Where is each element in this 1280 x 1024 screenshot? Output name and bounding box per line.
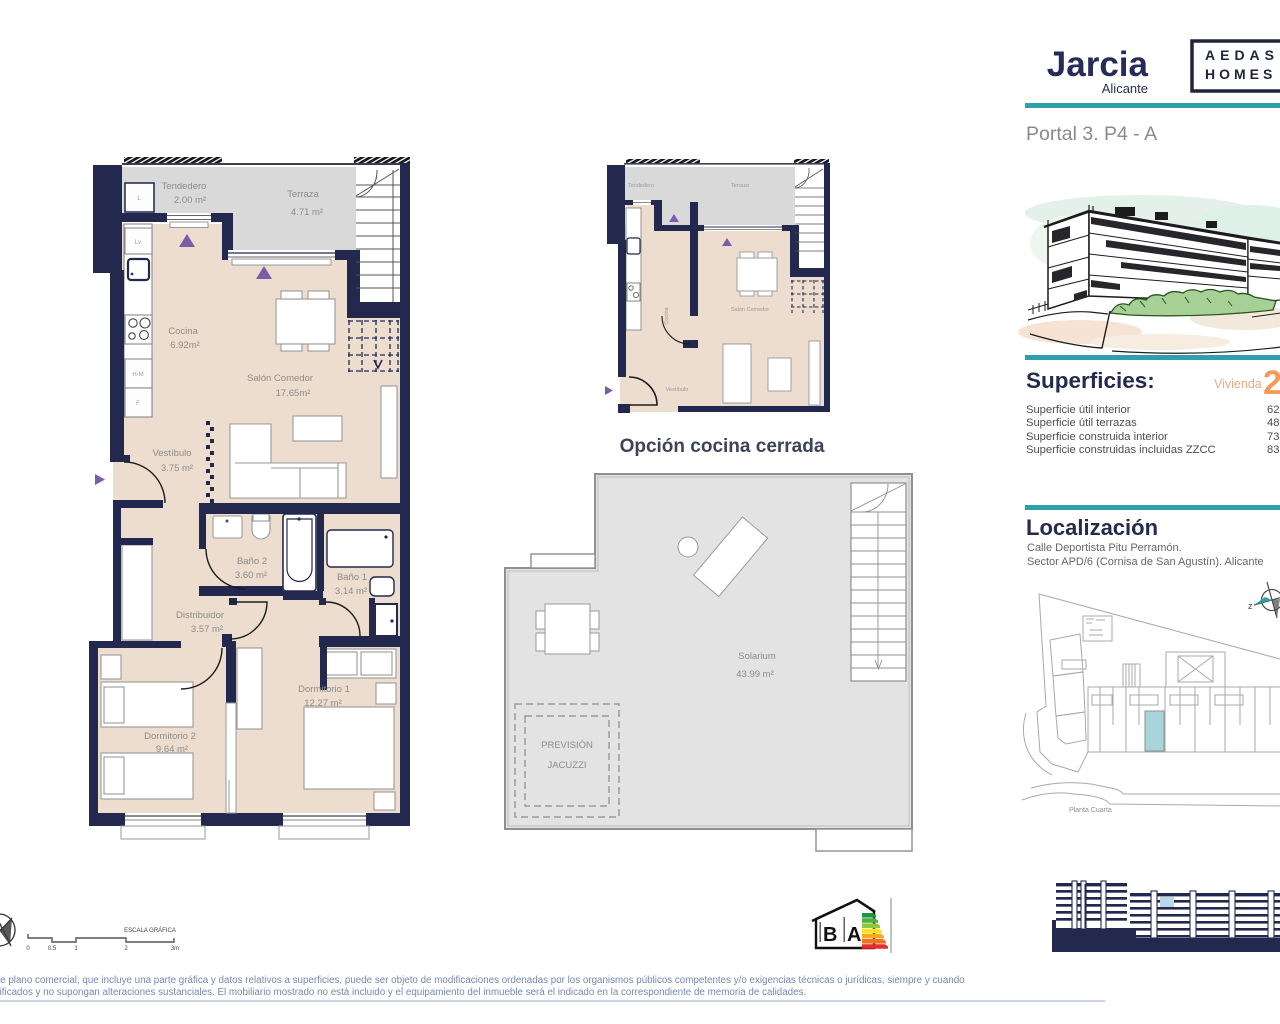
svg-text:Calle Deportista Pitu Perramón: Calle Deportista Pitu Perramón.: [1027, 542, 1182, 554]
svg-text:Cocina: Cocina: [664, 307, 670, 325]
svg-text:48: 48: [1267, 417, 1279, 429]
svg-text:B: B: [823, 924, 837, 946]
svg-text:Superficie construidas incluid: Superficie construidas incluidas ZZCC: [1026, 444, 1216, 456]
svg-text:Alicante: Alicante: [1102, 81, 1148, 96]
svg-text:Opción cocina cerrada: Opción cocina cerrada: [620, 436, 825, 457]
svg-text:Portal 3. P4 - A: Portal 3. P4 - A: [1026, 123, 1157, 145]
svg-text:83: 83: [1267, 444, 1279, 456]
svg-text:nte plano comercial, que inclu: nte plano comercial, que incluye una par…: [0, 975, 965, 986]
svg-text:PREVISIÓN: PREVISIÓN: [541, 740, 593, 751]
svg-text:Terraza: Terraza: [287, 189, 319, 200]
svg-text:HOMES: HOMES: [1205, 66, 1276, 82]
svg-text:Superficie útil terrazas: Superficie útil terrazas: [1026, 417, 1137, 429]
svg-text:Distribuidor: Distribuidor: [176, 610, 224, 621]
svg-text:9.64 m²: 9.64 m²: [156, 744, 188, 755]
svg-text:Superficies:: Superficies:: [1026, 368, 1155, 393]
svg-text:ESCALA GRÁFICA: ESCALA GRÁFICA: [124, 927, 176, 934]
svg-text:2: 2: [1263, 364, 1280, 402]
svg-text:F: F: [136, 401, 140, 407]
svg-text:Dormitorio 2: Dormitorio 2: [144, 731, 196, 742]
svg-text:4.71 m²: 4.71 m²: [291, 207, 323, 218]
svg-text:Solarium: Solarium: [738, 651, 776, 662]
svg-text:H-M: H-M: [132, 372, 143, 378]
svg-text:Tendedero: Tendedero: [628, 183, 654, 189]
svg-text:2.00 m²: 2.00 m²: [174, 195, 206, 206]
svg-text:A: A: [847, 924, 861, 946]
svg-text:17.65m²: 17.65m²: [276, 388, 311, 399]
svg-text:Lv: Lv: [135, 240, 141, 246]
svg-text:Salón Comedor: Salón Comedor: [247, 373, 313, 384]
svg-text:3.75 m²: 3.75 m²: [161, 463, 193, 474]
svg-text:Baño 1: Baño 1: [337, 572, 367, 583]
svg-text:Jarcia: Jarcia: [1047, 45, 1149, 84]
svg-text:Superficie construida interior: Superficie construida interior: [1026, 431, 1168, 443]
svg-text:JACUZZI: JACUZZI: [547, 760, 586, 771]
svg-text:Terraza: Terraza: [731, 183, 750, 189]
svg-text:12.27 m²: 12.27 m²: [304, 698, 342, 709]
svg-text:Sector APD/6 (Cornisa de San A: Sector APD/6 (Cornisa de San Agustín). A…: [1027, 556, 1264, 568]
svg-text:z: z: [1248, 601, 1253, 611]
svg-text:Planta Cuarta: Planta Cuarta: [1069, 807, 1112, 814]
svg-text:Localización: Localización: [1026, 515, 1158, 540]
svg-text:Salón Comedor: Salón Comedor: [731, 307, 769, 313]
svg-text:3.14 m²: 3.14 m²: [335, 586, 367, 597]
svg-text:Dormitorio 1: Dormitorio 1: [298, 684, 350, 695]
svg-text:Vivienda: Vivienda: [1214, 377, 1262, 391]
svg-text:6.92m²: 6.92m²: [170, 340, 200, 351]
svg-text:0.5: 0.5: [48, 946, 57, 952]
svg-text:AEDAS: AEDAS: [1205, 47, 1279, 63]
svg-text:3.60 m²: 3.60 m²: [235, 570, 267, 581]
svg-text:Vestíbulo: Vestíbulo: [152, 448, 191, 459]
svg-text:Baño 2: Baño 2: [237, 556, 267, 567]
svg-text:Cocina: Cocina: [168, 326, 198, 337]
svg-text:3.57 m²: 3.57 m²: [191, 624, 223, 635]
svg-text:Vestíbulo: Vestíbulo: [666, 387, 689, 393]
svg-text:73: 73: [1267, 431, 1279, 443]
svg-text:Tendedero: Tendedero: [162, 181, 207, 192]
svg-text:62: 62: [1267, 404, 1279, 416]
svg-text:stificados y no supongan alter: stificados y no supongan alteraciones su…: [0, 987, 806, 998]
svg-text:Superficie útil interior: Superficie útil interior: [1026, 404, 1131, 416]
svg-text:43.99 m²: 43.99 m²: [736, 669, 774, 680]
svg-text:3m: 3m: [171, 946, 179, 952]
